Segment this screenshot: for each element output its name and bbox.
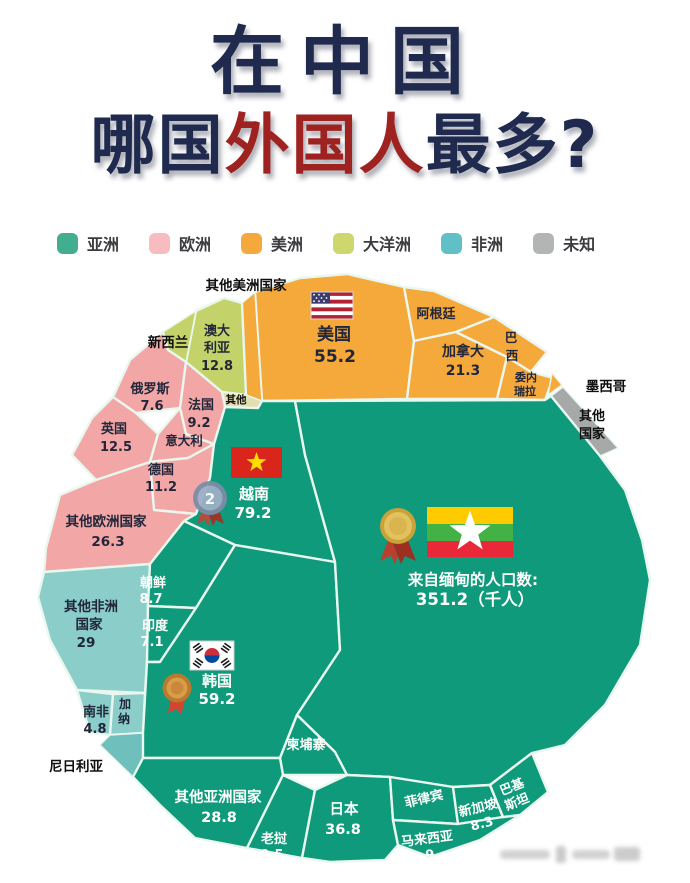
argentina-label: 阿根廷	[416, 306, 456, 322]
south-korea-value: 59.2	[198, 690, 235, 708]
other-countries-label-1: 其他	[579, 408, 605, 424]
other-small-label: 其他	[226, 393, 247, 406]
other-europe-value: 26.3	[91, 534, 124, 550]
japan-label: 日本	[330, 800, 359, 818]
vietnam-value: 79.2	[234, 504, 271, 522]
other-countries-label-2: 国家	[579, 426, 606, 442]
australia-value: 12.8	[201, 359, 233, 374]
vietnam-label: 越南	[238, 485, 269, 503]
myanmar-caption-2: 351.2（千人）	[416, 589, 534, 609]
watermark	[500, 846, 640, 863]
nigeria-label: 尼日利亚	[49, 758, 103, 775]
japan-value: 36.8	[325, 822, 361, 838]
cambodia-label: 柬埔寨	[286, 737, 325, 753]
malaysia-value: 9	[425, 848, 436, 864]
canada-label: 加拿大	[441, 343, 484, 360]
south-africa-value: 4.8	[83, 722, 106, 737]
italy-label: 意大利	[165, 433, 203, 448]
ghana-label-2: 纳	[118, 711, 130, 726]
myanmar-caption-1: 来自缅甸的人口数:	[407, 570, 538, 589]
canada-value: 21.3	[446, 363, 481, 379]
russia-label: 俄罗斯	[129, 381, 169, 397]
new-zealand-label: 新西兰	[148, 334, 189, 351]
south-korea-flag-icon	[190, 641, 234, 670]
north-korea-value: 8.7	[139, 592, 162, 607]
brazil-label-2: 西	[506, 348, 519, 363]
south-korea-label: 韩国	[202, 672, 232, 690]
india-value: 7.1	[140, 635, 163, 650]
mexico-label: 墨西哥	[586, 379, 627, 395]
brazil-label-1: 巴	[505, 330, 518, 345]
germany-value: 11.2	[145, 480, 177, 495]
silver-rank: 2	[205, 490, 215, 508]
vietnam-flag-icon	[231, 447, 282, 478]
venezuela-label-2: 瑞拉	[514, 384, 536, 398]
north-korea-label: 朝鲜	[140, 575, 166, 591]
other-europe-label: 其他欧洲国家	[66, 513, 147, 530]
germany-label: 德国	[148, 462, 174, 478]
usa-flag-icon	[311, 292, 353, 319]
uk-value: 12.5	[100, 440, 132, 455]
gold-medal-icon	[380, 508, 416, 564]
australia-label-2: 利亚	[204, 340, 230, 356]
france-value: 9.2	[187, 416, 210, 431]
other-africa-label-2: 国家	[76, 616, 103, 633]
south-africa-label: 南非	[83, 704, 109, 720]
laos-label: 老挝	[260, 831, 288, 847]
usa-label: 美国	[317, 324, 351, 345]
myanmar-flag-icon	[427, 507, 513, 557]
ghana-label-1: 加	[118, 696, 131, 711]
cell-japan	[302, 775, 398, 862]
infographic-page: 在中国 哪国外国人最多? 亚洲 欧洲 美洲 大洋洲 非洲 未知	[0, 0, 690, 883]
india-label: 印度	[142, 618, 169, 634]
usa-value: 55.2	[314, 347, 356, 367]
russia-value: 7.6	[140, 399, 163, 414]
other-asia-value: 28.8	[201, 810, 237, 826]
uk-label: 英国	[100, 421, 127, 437]
venezuela-label-1: 委内	[514, 370, 537, 384]
voronoi-treemap: 2 美国 55.2 阿根廷 加拿大 21.3 巴 西 委内 瑞拉 澳大 利亚 1…	[0, 0, 690, 883]
laos-value: 9.5	[260, 848, 283, 863]
other-africa-label-1: 其他非洲	[64, 598, 118, 615]
australia-label-1: 澳大	[204, 323, 230, 339]
france-label: 法国	[188, 397, 214, 413]
other-africa-value: 29	[77, 635, 96, 651]
other-americas-label: 其他美洲国家	[206, 277, 287, 294]
other-asia-label: 其他亚洲国家	[175, 788, 262, 806]
